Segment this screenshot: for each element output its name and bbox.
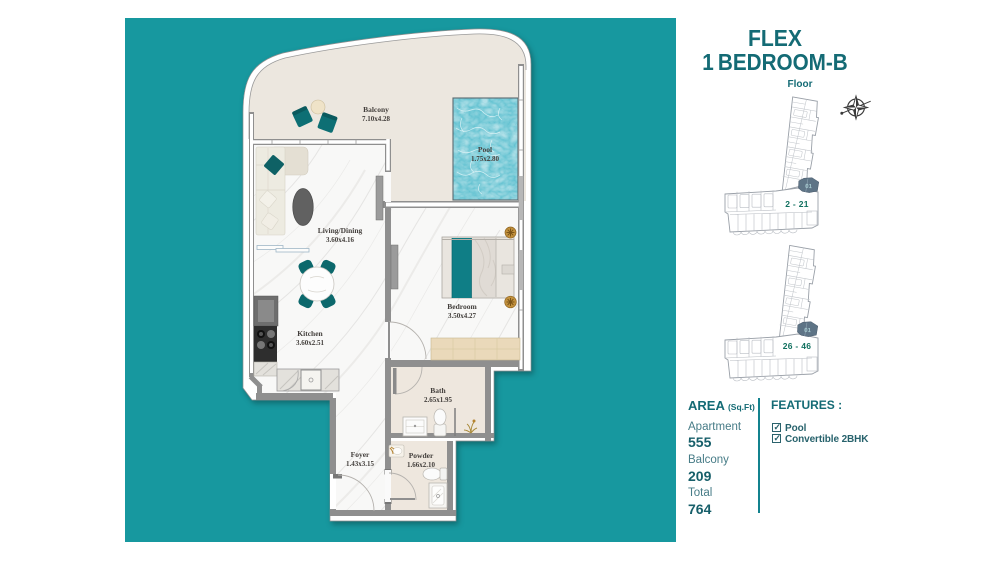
- svg-text:Balcony: Balcony: [363, 105, 389, 114]
- svg-text:1.75x2.80: 1.75x2.80: [471, 155, 500, 163]
- svg-text:7.10x4.28: 7.10x4.28: [362, 115, 391, 123]
- svg-text:1.43x3.15: 1.43x3.15: [346, 460, 375, 468]
- svg-text:Kitchen: Kitchen: [297, 329, 323, 338]
- svg-text:Powder: Powder: [409, 451, 434, 460]
- svg-text:Living/Dining: Living/Dining: [318, 226, 363, 235]
- svg-text:1.66x2.10: 1.66x2.10: [407, 461, 436, 469]
- svg-text:Pool: Pool: [478, 145, 492, 154]
- svg-text:3.50x4.27: 3.50x4.27: [448, 312, 477, 320]
- svg-text:Bath: Bath: [430, 386, 446, 395]
- svg-text:Foyer: Foyer: [351, 450, 370, 459]
- svg-text:Bedroom: Bedroom: [447, 302, 477, 311]
- svg-text:3.60x2.51: 3.60x2.51: [296, 339, 325, 347]
- svg-text:2 - 21: 2 - 21: [785, 199, 809, 209]
- svg-text:2.65x1.95: 2.65x1.95: [424, 396, 453, 404]
- svg-text:3.60x4.16: 3.60x4.16: [326, 236, 355, 244]
- svg-text:26 - 46: 26 - 46: [783, 341, 812, 351]
